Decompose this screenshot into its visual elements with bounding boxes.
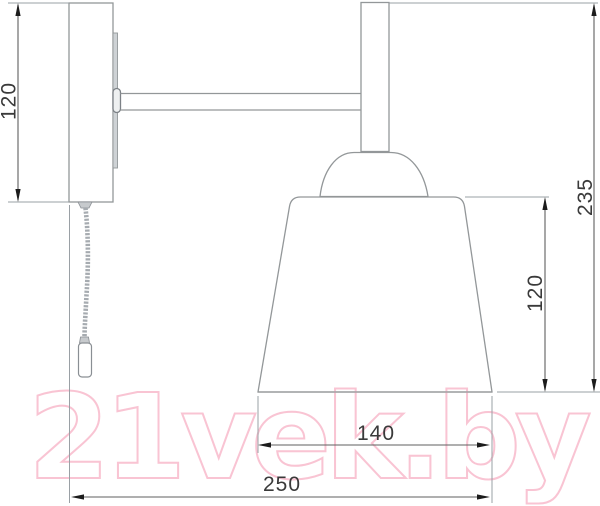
dim-label-shade-height: 120: [524, 274, 547, 312]
dim-label-overall-depth: 250: [263, 473, 301, 496]
wall-plate: [69, 3, 113, 202]
arm-joint-connector: [113, 89, 121, 113]
lamp-shade: [258, 197, 492, 392]
lamp-holder-dome: [320, 153, 428, 197]
arrow-up-icon: [591, 3, 596, 16]
vertical-arm: [361, 3, 389, 152]
wall-lamp-technical-drawing: 21vek.by: [0, 0, 600, 506]
dim-label-bracket-height: 120: [0, 82, 21, 120]
arrow-down-icon: [591, 379, 596, 392]
arrow-up-icon: [15, 3, 20, 16]
dim-label-shade-diameter: 140: [357, 422, 395, 445]
lamp-structure: [69, 3, 492, 393]
horizontal-arm: [121, 94, 362, 111]
arrow-up-icon: [542, 197, 547, 210]
technical-drawing-canvas: 21vek.by: [0, 0, 600, 506]
arrow-down-icon: [15, 189, 20, 202]
pull-chain-connector: [78, 202, 92, 208]
watermark-text: 21vek.by: [28, 368, 590, 506]
pull-handle-cap: [80, 337, 90, 343]
pull-chain: [85, 208, 88, 338]
dim-label-overall-height: 235: [574, 178, 597, 216]
